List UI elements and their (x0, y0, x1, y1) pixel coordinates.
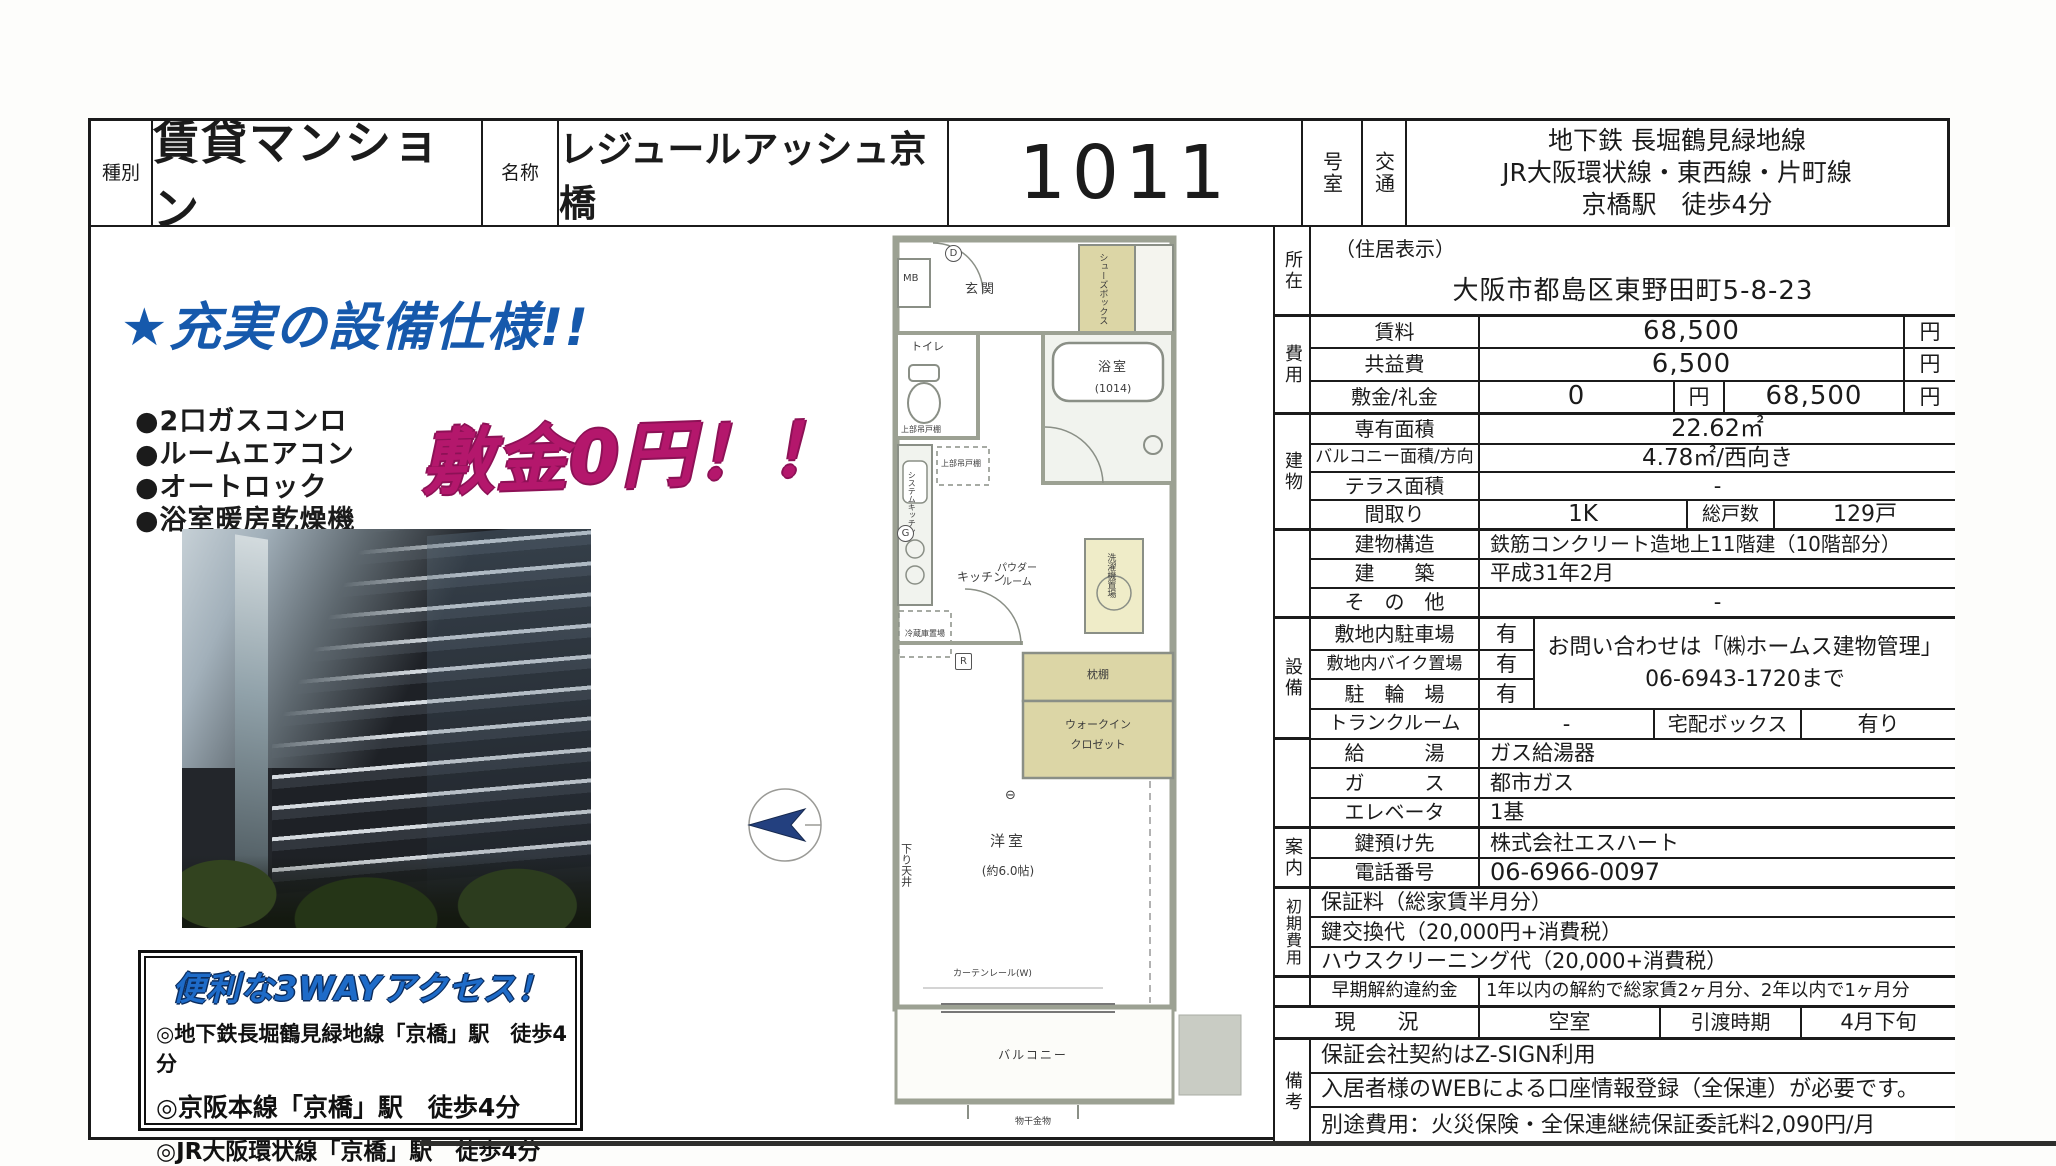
feature-item: ●オートロック (135, 471, 356, 504)
mark-r: R (955, 653, 972, 670)
common-fee-label: 共益費 (1311, 349, 1480, 380)
layout-value: 1K (1480, 501, 1688, 528)
delivery-box-value: 有り (1802, 710, 1955, 738)
key-money-unit: 円 (1905, 382, 1955, 412)
toilet-shelf-label: 上部吊戸棚 (901, 425, 941, 434)
shelf-label: 枕棚 (1043, 669, 1153, 682)
deposit-value: 0 (1480, 382, 1675, 412)
western-room-label: 洋室 (948, 833, 1068, 850)
key-exchange-text: 鍵交換代（20,000円+消費税） (1311, 918, 1955, 946)
section-filler-1 (1275, 531, 1311, 619)
hot-water-label: 給 湯 (1311, 740, 1480, 767)
balcony-area-value: 4.78㎡/西向き (1480, 445, 1955, 471)
current-status-label: 現 況 (1275, 1008, 1480, 1037)
remark-3-text: 別途費用：火災保険・全保連継続保証委託料2,090円/月 (1311, 1108, 1955, 1143)
section-cost: 費用 (1275, 317, 1311, 415)
section-equipment: 設備 (1275, 619, 1311, 740)
trunk-value: - (1480, 710, 1655, 738)
bicycle-parking-value: 有 (1480, 680, 1535, 708)
row-terrace-area: テラス面積 - (1311, 473, 1955, 501)
parking-value: 有 (1480, 619, 1535, 649)
section-remarks: 備考 (1275, 1040, 1311, 1143)
layout-label: 間取り (1311, 501, 1480, 528)
early-termination-label: 早期解約違約金 (1311, 978, 1480, 1005)
transport-label: 交通 (1363, 121, 1407, 225)
balcony-label: バルコニー (973, 1049, 1093, 1063)
other-label: そ の 他 (1311, 589, 1480, 616)
fridge-label: 冷蔵庫置場 (905, 629, 945, 638)
section-location: 所在 (1275, 227, 1311, 317)
delivery-box-label: 宅配ボックス (1655, 710, 1802, 738)
structure-value: 鉄筋コンクリート造地上11階建（10階部分） (1480, 531, 1955, 558)
row-built-date: 建 築 平成31年2月 (1311, 560, 1955, 589)
remark-1-text: 保証会社契約はZ-SIGN利用 (1311, 1040, 1955, 1072)
property-type: 賃貸マンション (153, 121, 483, 225)
row-current-status: 現 況 空室 引渡時期 4月下旬 (1275, 1008, 1955, 1040)
lowered-ceiling-label: 下り天井 (899, 843, 912, 933)
trunk-label: トランクルーム (1311, 710, 1480, 738)
feature-list: ●2口ガスコンロ ●ルームエアコン ●オートロック ●浴室暖房乾燥機 (135, 405, 356, 537)
parking-label: 敷地内駐車場 (1311, 619, 1480, 649)
window-mark: ⊖ (1005, 789, 1016, 804)
row-key-exchange: 鍵交換代（20,000円+消費税） (1311, 918, 1955, 948)
gas-label: ガ ス (1311, 769, 1480, 797)
common-fee-unit: 円 (1905, 349, 1955, 380)
compass-icon (743, 783, 827, 867)
row-bicycle-parking: 駐 輪 場 有 (1311, 680, 1535, 710)
mark-g: G (897, 525, 914, 542)
row-trunk: トランクルーム - 宅配ボックス 有り (1311, 710, 1955, 740)
key-holder-label: 鍵預け先 (1311, 829, 1480, 857)
row-location: （住居表示） 大阪市都島区東野田町5-8-23 (1311, 227, 1955, 317)
building-photo (182, 529, 591, 928)
section-guide: 案内 (1275, 829, 1311, 889)
toilet-label: トイレ (911, 341, 944, 354)
access-line-2: ◎京阪本線「京橋」駅 徒歩4分 (156, 1088, 567, 1124)
house-cleaning-text: ハウスクリーニング代（20,000+消費税） (1311, 948, 1955, 975)
phone-label: 電話番号 (1311, 859, 1480, 886)
access-line-1: ◎地下鉄長堀鶴見緑地線「京橋」駅 徒歩4分 (156, 1018, 567, 1078)
powder-room-label-2: ルーム (981, 577, 1053, 589)
drying-fixture-label: 物干金物 (973, 1117, 1093, 1127)
type-label: 種別 (91, 121, 153, 225)
row-balcony-area: バルコニー面積/方向 4.78㎡/西向き (1311, 445, 1955, 473)
flyer-frame: 種別 賃貸マンション 名称 レジュールアッシュ京橋 1011 号室 交通 地下鉄… (88, 118, 1950, 1140)
bike-parking-label: 敷地内バイク置場 (1311, 651, 1480, 678)
row-house-cleaning: ハウスクリーニング代（20,000+消費税） (1311, 948, 1955, 978)
row-rent: 賃料 68,500 円 (1311, 317, 1955, 349)
built-date-label: 建 築 (1311, 560, 1480, 587)
entrance-label: 玄関 (965, 283, 997, 298)
walkin-label-1: ウォークイン (1043, 719, 1153, 732)
row-hot-water: 給 湯 ガス給湯器 (1311, 740, 1955, 769)
access-box: 便利な3WAYアクセス！ ◎地下鉄長堀鶴見緑地線「京橋」駅 徒歩4分 ◎京阪本線… (138, 950, 583, 1131)
kitchen-shelf-label: 上部吊戸棚 (941, 459, 981, 468)
row-deposit: 敷金/礼金 0 円 68,500 円 (1311, 382, 1955, 415)
row-structure: 建物構造 鉄筋コンクリート造地上11階建（10階部分） (1311, 531, 1955, 560)
total-units-label: 総戸数 (1688, 501, 1775, 528)
management-contact-line-1: お問い合わせは「㈱ホームス建物管理」 (1547, 632, 1942, 664)
washer-label: 洗濯機置場 (1105, 553, 1115, 623)
key-money-value: 68,500 (1725, 382, 1905, 412)
feature-item: ●2口ガスコンロ (135, 405, 356, 438)
transport-line-2: JR大阪環状線・東西線・片町線 (1502, 157, 1852, 189)
room-number: 1011 (949, 121, 1303, 225)
address-value: 大阪市都島区東野田町5-8-23 (1311, 262, 1955, 313)
exclusive-area-label: 専有面積 (1311, 415, 1480, 443)
total-units-value: 129戸 (1775, 501, 1955, 528)
row-exclusive-area: 専有面積 22.62㎡ (1311, 415, 1955, 445)
terrace-area-label: テラス面積 (1311, 473, 1480, 499)
handover-label: 引渡時期 (1661, 1008, 1802, 1037)
address-note: （住居表示） (1311, 229, 1955, 262)
structure-label: 建物構造 (1311, 531, 1480, 558)
other-value: - (1480, 589, 1955, 616)
deposit-label: 敷金/礼金 (1311, 382, 1480, 412)
balcony-area-label: バルコニー面積/方向 (1311, 445, 1480, 471)
detail-table: 所在 費用 建物 設備 案内 初期費用 備考 （住居表示） 大阪市都島区東野田町… (1273, 227, 1953, 1143)
bath-label: 浴室 (1063, 361, 1163, 376)
header-row: 種別 賃貸マンション 名称 レジュールアッシュ京橋 1011 号室 交通 地下鉄… (91, 121, 1947, 227)
row-bike-parking: 敷地内バイク置場 有 (1311, 651, 1535, 680)
row-common-fee: 共益費 6,500 円 (1311, 349, 1955, 382)
built-date-value: 平成31年2月 (1480, 560, 1955, 587)
photo-trees (182, 816, 591, 928)
access-title: 便利な3WAYアクセス！ (156, 962, 567, 1010)
access-box-inner: 便利な3WAYアクセス！ ◎地下鉄長堀鶴見緑地線「京橋」駅 徒歩4分 ◎京阪本線… (144, 956, 577, 1125)
row-remark-3: 別途費用：火災保険・全保連継続保証委託料2,090円/月 (1311, 1108, 1955, 1143)
row-early-termination: 早期解約違約金 1年以内の解約で総家賃2ヶ月分、2年以内で1ヶ月分 (1311, 978, 1955, 1008)
rent-unit: 円 (1905, 317, 1955, 347)
hot-water-value: ガス給湯器 (1480, 740, 1955, 767)
row-elevator: エレベータ 1基 (1311, 799, 1955, 829)
bike-parking-value: 有 (1480, 651, 1535, 678)
early-termination-value: 1年以内の解約で総家賃2ヶ月分、2年以内で1ヶ月分 (1480, 978, 1955, 1005)
transport-info: 地下鉄 長堀鶴見緑地線 JR大阪環状線・東西線・片町線 京橋駅 徒歩4分 (1407, 121, 1947, 225)
scan-edge-artifact (420, 1141, 2056, 1146)
access-line-3: ◎JR大阪環状線「京橋」駅 徒歩4分 (156, 1132, 567, 1166)
deposit-unit: 円 (1675, 382, 1725, 412)
row-phone: 電話番号 06-6966-0097 (1311, 859, 1955, 889)
row-guarantee-fee: 保証料（総家賃半月分） (1311, 889, 1955, 918)
section-filler-3 (1275, 978, 1311, 1008)
common-fee-value: 6,500 (1480, 349, 1905, 380)
bicycle-parking-label: 駐 輪 場 (1311, 680, 1480, 708)
row-parking: 敷地内駐車場 有 (1311, 619, 1535, 651)
floor-plan: MB 玄関 シューズボックス トイレ 上部吊戸棚 浴室 (1014) キッチン … (853, 233, 1283, 1143)
row-remark-2: 入居者様のWEBによる口座情報登録（全保連）が必要です。 (1311, 1074, 1955, 1108)
toilet-bowl (908, 383, 940, 423)
ac-outdoor-unit (1179, 1015, 1241, 1095)
terrace-area-value: - (1480, 473, 1955, 499)
elevator-value: 1基 (1480, 799, 1955, 826)
elevator-label: エレベータ (1311, 799, 1480, 826)
shoes-box-label: シューズボックス (1097, 253, 1107, 325)
section-building: 建物 (1275, 415, 1311, 531)
row-gas: ガ ス 都市ガス (1311, 769, 1955, 799)
name-label: 名称 (483, 121, 559, 225)
phone-value: 06-6966-0097 (1480, 859, 1955, 886)
building-name: レジュールアッシュ京橋 (559, 121, 949, 225)
row-key-holder: 鍵預け先 株式会社エスハート (1311, 829, 1955, 859)
handover-value: 4月下旬 (1802, 1008, 1955, 1037)
powder-room-label-1: パウダー (981, 563, 1053, 575)
guarantee-fee-text: 保証料（総家賃半月分） (1311, 889, 1955, 916)
meter-box-label: MB (903, 273, 919, 285)
zero-deposit-highlight: 敷金0円！！ (419, 390, 845, 510)
management-contact: お問い合わせは「㈱ホームス建物管理」 06-6943-1720まで (1535, 619, 1955, 710)
transport-line-1: 地下鉄 長堀鶴見緑地線 (1548, 125, 1806, 157)
current-status-value: 空室 (1480, 1008, 1661, 1037)
exclusive-area-value: 22.62㎡ (1480, 415, 1955, 443)
walkin-label-2: クロゼット (1043, 739, 1153, 752)
rent-value: 68,500 (1480, 317, 1905, 347)
bath-size-label: (1014) (1063, 383, 1163, 396)
room-number-suffix: 号室 (1303, 121, 1363, 225)
section-initial-cost: 初期費用 (1275, 889, 1311, 978)
row-remark-1: 保証会社契約はZ-SIGN利用 (1311, 1040, 1955, 1074)
remark-2-text: 入居者様のWEBによる口座情報登録（全保連）が必要です。 (1311, 1074, 1955, 1106)
equipment-headline: ★充実の設備仕様!! (121, 285, 589, 360)
gas-value: 都市ガス (1480, 769, 1955, 797)
rent-label: 賃料 (1311, 317, 1480, 347)
row-layout: 間取り 1K 総戸数 129戸 (1311, 501, 1955, 531)
western-room-size-label: (約6.0帖) (948, 865, 1068, 879)
mark-d: D (945, 245, 962, 262)
transport-line-3: 京橋駅 徒歩4分 (1582, 189, 1773, 221)
curtain-rail-label: カーテンレール(W) (953, 969, 1032, 979)
key-holder-value: 株式会社エスハート (1480, 829, 1955, 857)
management-contact-line-2: 06-6943-1720まで (1645, 664, 1845, 696)
section-filler-2 (1275, 740, 1311, 829)
row-other: そ の 他 - (1311, 589, 1955, 619)
feature-item: ●ルームエアコン (135, 438, 356, 471)
